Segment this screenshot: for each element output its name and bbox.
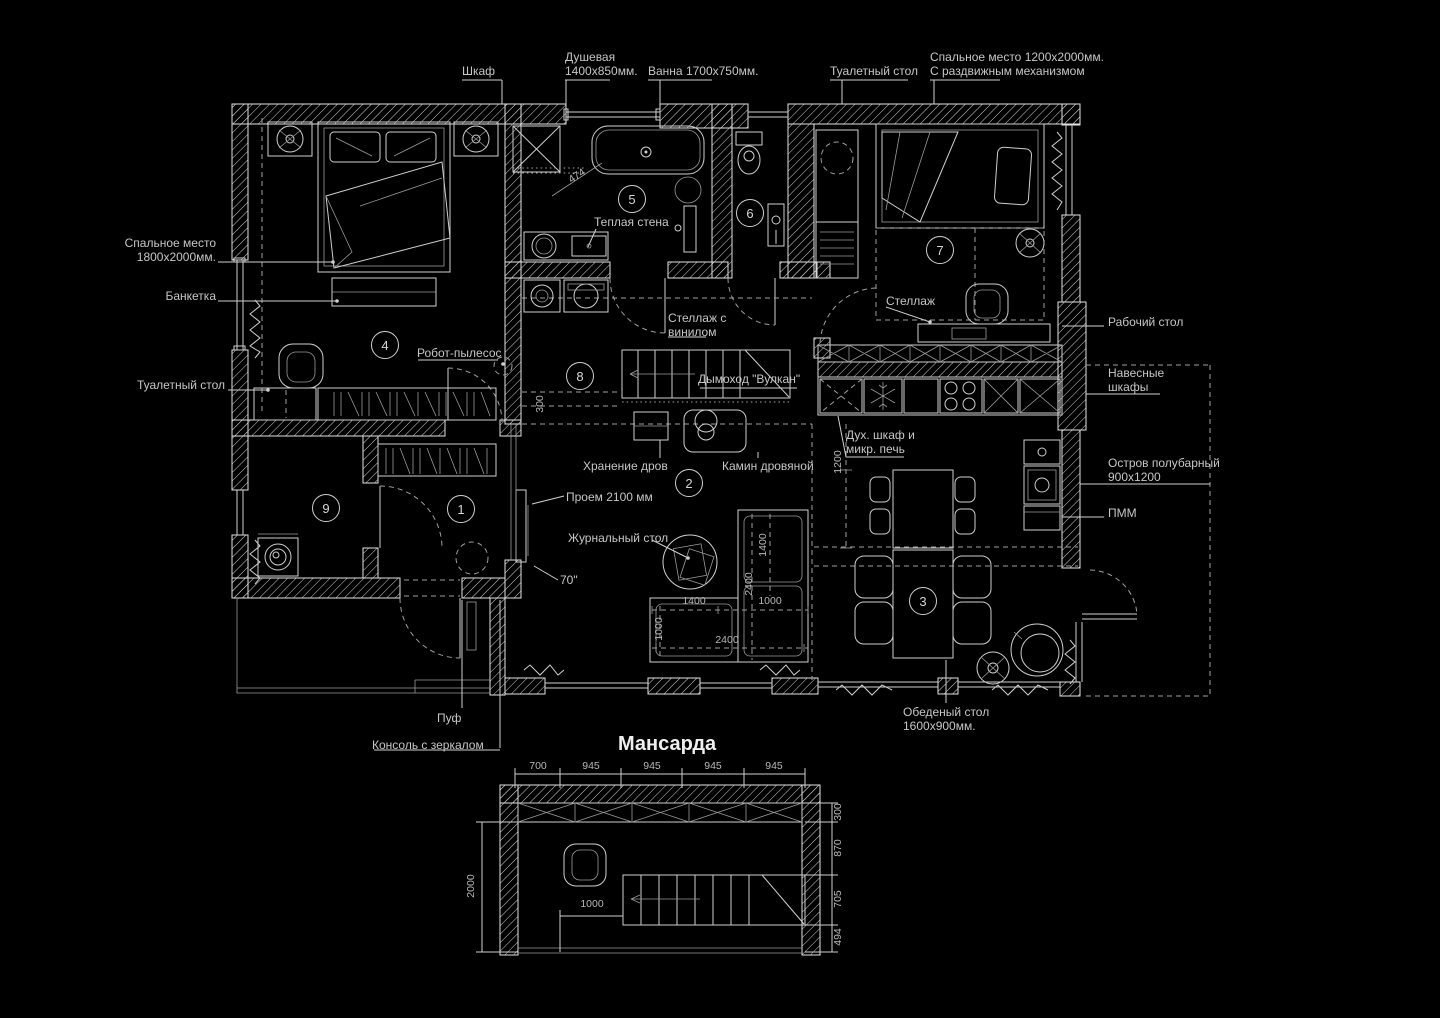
attic-dim-945-3: 945 xyxy=(697,760,729,772)
dim-sofa-depth: 1000 xyxy=(653,611,665,647)
label-robot-vacuum: Робот-пылесос xyxy=(417,346,502,360)
callout-mirror-console: Консоль с зеркалом xyxy=(372,738,484,752)
callout-banquette: Банкетка xyxy=(80,289,216,303)
room9-furniture xyxy=(258,534,298,576)
room-number-5: 5 xyxy=(618,185,646,213)
attic-dim-300: 300 xyxy=(832,795,844,829)
floor-plan-page: Шкаф Душевая 1400х850мм. Ванна 1700х750м… xyxy=(0,0,1440,1018)
label-fireplace: Камин дровяной xyxy=(722,459,814,473)
callout-main-bed: Спальное место 1800х2000мм. xyxy=(80,236,216,264)
label-coffee-table: Журнальный стол xyxy=(568,531,668,545)
label-shelf: Стеллаж xyxy=(886,294,935,308)
callout-wall-cabinets: Навесные шкафы xyxy=(1108,366,1164,394)
callout-bath: Ванна 1700х750мм. xyxy=(648,64,759,78)
dim-sofa-total-h: 2400 xyxy=(709,634,745,646)
floor-plan-drawing xyxy=(0,0,1440,1018)
callout-island: Остров полубарный 900х1200 xyxy=(1108,456,1220,484)
dim-sofa-seg2: 1000 xyxy=(752,595,788,607)
dim-sofa-seg1: 1400 xyxy=(676,595,712,607)
callout-dishwasher: ПММ xyxy=(1108,506,1137,520)
attic-dim-870: 870 xyxy=(832,831,844,865)
label-vinyl-shelf: Стеллаж с винилом xyxy=(668,311,726,339)
bathroom6 xyxy=(736,132,784,246)
room-number-1: 1 xyxy=(447,495,475,523)
callout-shower: Душевая 1400х850мм. xyxy=(565,50,638,78)
dining xyxy=(855,550,1063,684)
room-number-7: 7 xyxy=(926,236,954,264)
dim-sofa-chaise: 1400 xyxy=(757,527,769,563)
callout-wardrobe: Шкаф xyxy=(462,64,495,78)
room-number-9: 9 xyxy=(312,494,340,522)
attic-dim-2000: 2000 xyxy=(465,866,477,906)
walls xyxy=(232,104,1086,696)
attic-dim-1000: 1000 xyxy=(573,898,611,910)
callout-sliding-bed: Спальное место 1200х2000мм. С раздвижным… xyxy=(930,50,1104,78)
room7-furniture xyxy=(816,124,1050,342)
attic-title: Мансарда xyxy=(618,733,716,756)
callout-dressing-table-left: Туалетный стол xyxy=(89,378,225,392)
callout-dressing-table-top: Туалетный стол xyxy=(830,64,918,78)
label-warm-wall: Теплая стена xyxy=(594,215,669,229)
attic-dim-700: 700 xyxy=(522,760,554,772)
corridor-laundry xyxy=(524,280,608,312)
label-chimney: Дымоход "Вулкан" xyxy=(698,372,800,386)
attic-dim-945-1: 945 xyxy=(575,760,607,772)
attic-dim-705: 705 xyxy=(832,882,844,916)
fireplace xyxy=(634,410,746,452)
callout-dining-table: Обеденый стол 1600х900мм. xyxy=(903,705,989,733)
attic-plan xyxy=(476,768,838,955)
attic-dim-945-2: 945 xyxy=(636,760,668,772)
room-number-4: 4 xyxy=(371,331,399,359)
label-oven-microwave: Дух. шкаф и микр. печь xyxy=(846,428,915,456)
attic-dim-494: 494 xyxy=(832,920,844,954)
label-firewood: Хранение дров xyxy=(583,459,668,473)
label-opening: Проем 2100 мм xyxy=(566,490,653,504)
dim-island: 1200 xyxy=(832,444,844,480)
bathroom5 xyxy=(513,126,704,260)
callout-pouf: Пуф xyxy=(437,711,461,725)
attic-dim-945-4: 945 xyxy=(758,760,790,772)
room-number-8: 8 xyxy=(566,362,594,390)
dim-corridor: 300 xyxy=(534,388,546,420)
room-number-3: 3 xyxy=(909,587,937,615)
label-tv-size: 70" xyxy=(560,573,578,587)
callout-work-desk: Рабочий стол xyxy=(1108,315,1183,329)
room4-furniture xyxy=(254,122,512,420)
room-number-6: 6 xyxy=(736,199,764,227)
room-number-2: 2 xyxy=(675,469,703,497)
